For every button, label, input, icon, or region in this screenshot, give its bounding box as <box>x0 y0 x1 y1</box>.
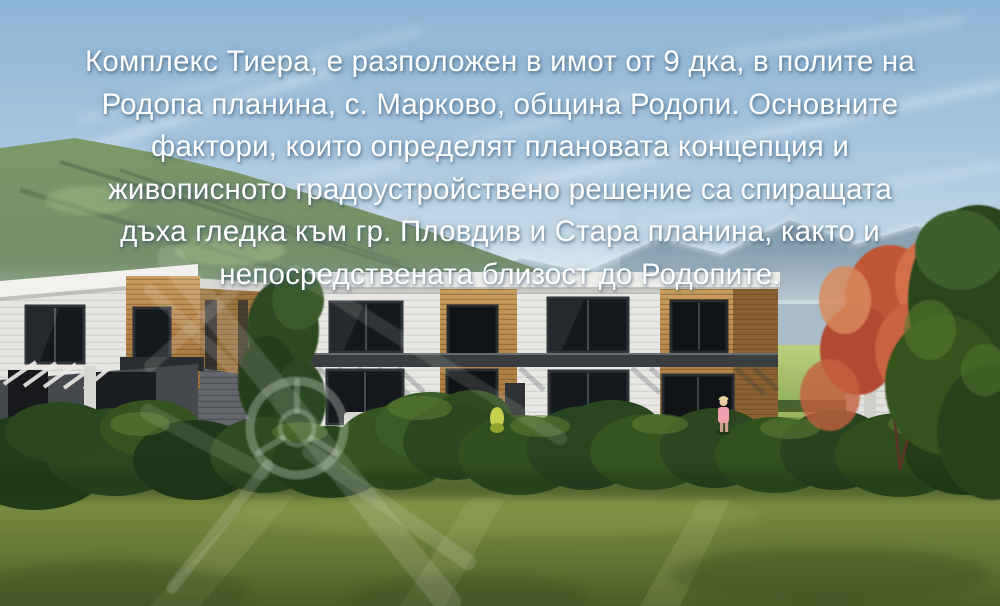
architectural-render <box>0 0 1000 606</box>
small-figure <box>490 407 504 433</box>
real-estate-render-slide: Комплекс Тиера, е разположен в имот от 9… <box>0 0 1000 606</box>
